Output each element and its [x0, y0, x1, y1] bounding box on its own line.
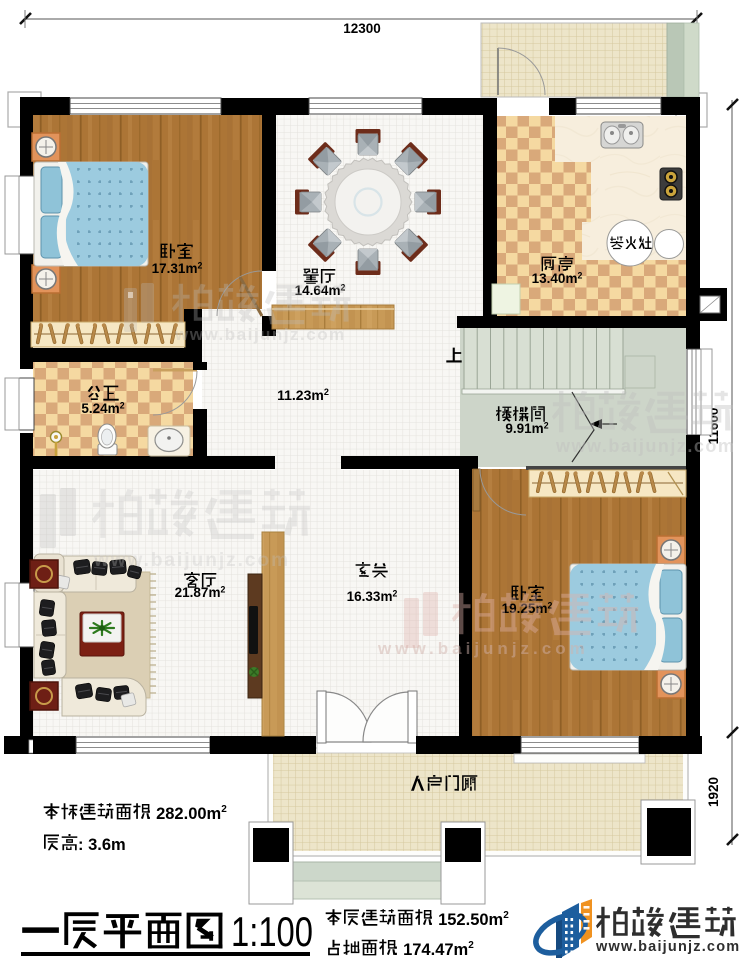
svg-text:21.87m2: 21.87m2	[175, 584, 226, 600]
svg-text:9.91m2: 9.91m2	[505, 420, 548, 436]
svg-text:11.23m2: 11.23m2	[277, 387, 329, 403]
svg-text:1920: 1920	[706, 777, 721, 807]
svg-text:13.40m2: 13.40m2	[532, 270, 583, 286]
svg-text:: 282.00m2: : 282.00m2	[146, 804, 227, 823]
svg-text:16.33m2: 16.33m2	[347, 588, 398, 604]
svg-text:17.31m2: 17.31m2	[152, 260, 203, 276]
svg-text:www.baijunjz.com: www.baijunjz.com	[595, 939, 740, 955]
svg-text:12300: 12300	[343, 21, 381, 36]
svg-text:www.baijunjz.com: www.baijunjz.com	[93, 550, 290, 571]
svg-text:: 174.47m2: : 174.47m2	[393, 940, 474, 959]
svg-text:www.baijunjz.com: www.baijunjz.com	[555, 436, 735, 456]
svg-text:: 152.50m2: : 152.50m2	[428, 910, 509, 929]
svg-text:: 3.6m: : 3.6m	[78, 836, 126, 854]
svg-text:5.24m2: 5.24m2	[81, 400, 124, 416]
svg-text:www.baijunjz.com: www.baijunjz.com	[174, 325, 346, 344]
svg-text:1:100: 1:100	[231, 908, 313, 955]
